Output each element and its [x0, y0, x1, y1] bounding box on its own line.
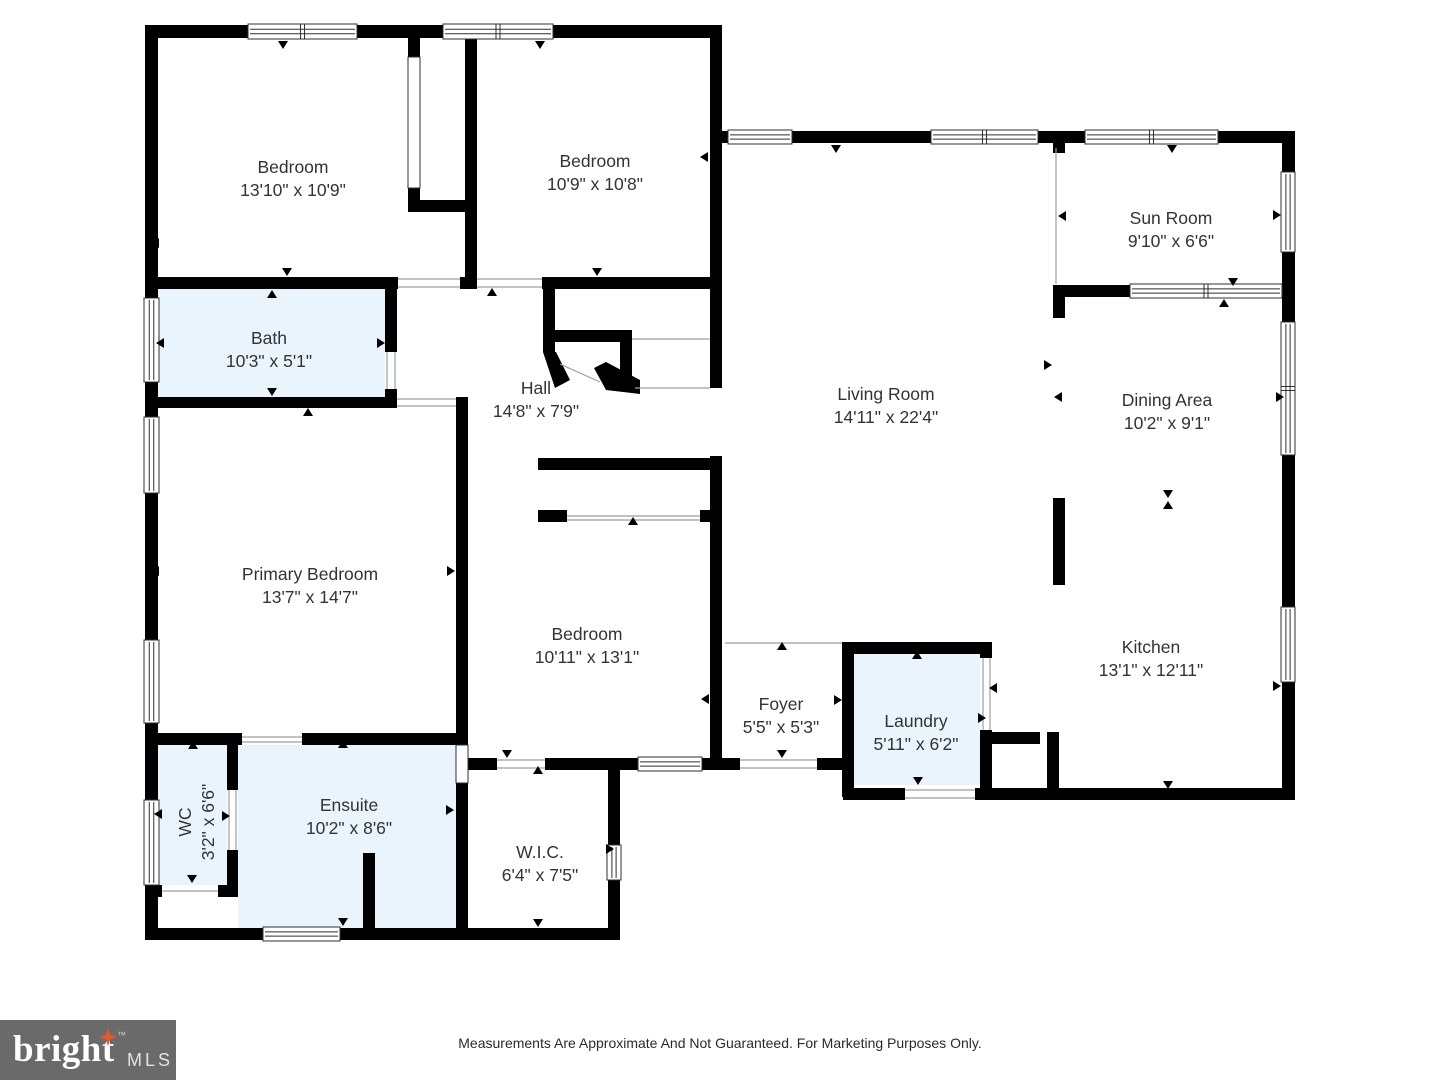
- room-label-ensuite: Ensuite 10'2" x 8'6": [306, 794, 392, 840]
- room-label-living-room: Living Room 14'11" x 22'4": [834, 383, 938, 429]
- room-label-wic: W.I.C. 6'4" x 7'5": [502, 841, 579, 887]
- room-label-primary-bedroom: Primary Bedroom 13'7" x 14'7": [242, 563, 378, 609]
- room-name: Kitchen: [1099, 636, 1203, 659]
- room-label-wc: WC 3'2" x 6'6": [174, 784, 220, 861]
- room-name: Hall: [493, 377, 579, 400]
- room-name: Bath: [226, 327, 312, 350]
- room-label-bedroom-1: Bedroom 13'10" x 10'9": [240, 156, 346, 202]
- room-dimensions: 6'4" x 7'5": [502, 864, 579, 887]
- bright-mls-logo: bright ™ MLS: [0, 1020, 176, 1080]
- room-name: Bedroom: [240, 156, 346, 179]
- room-name: Dining Area: [1122, 389, 1212, 412]
- floor-plan-drawing: [0, 0, 1440, 1080]
- room-name: Primary Bedroom: [242, 563, 378, 586]
- room-name: Bedroom: [535, 623, 639, 646]
- room-label-hall: Hall 14'8" x 7'9": [493, 377, 579, 423]
- room-dimensions: 13'10" x 10'9": [240, 179, 346, 202]
- room-dimensions: 5'11" x 6'2": [874, 733, 959, 756]
- room-name: WC: [174, 784, 197, 861]
- room-name: Sun Room: [1128, 207, 1214, 230]
- logo-trademark: ™: [117, 1030, 126, 1040]
- room-label-kitchen: Kitchen 13'1" x 12'11": [1099, 636, 1203, 682]
- room-label-sun-room: Sun Room 9'10" x 6'6": [1128, 207, 1214, 253]
- logo-mls-text: MLS: [127, 1050, 173, 1071]
- room-label-bath: Bath 10'3" x 5'1": [226, 327, 312, 373]
- room-name: Laundry: [874, 710, 959, 733]
- room-dimensions: 10'2" x 8'6": [306, 817, 392, 840]
- room-name: Bedroom: [547, 150, 643, 173]
- disclaimer-text: Measurements Are Approximate And Not Gua…: [0, 1035, 1440, 1051]
- room-dimensions: 5'5" x 5'3": [743, 716, 820, 739]
- room-name: W.I.C.: [502, 841, 579, 864]
- room-dimensions: 10'11" x 13'1": [535, 646, 639, 669]
- room-label-laundry: Laundry 5'11" x 6'2": [874, 710, 959, 756]
- room-dimensions: 10'9" x 10'8": [547, 173, 643, 196]
- room-dimensions: 14'11" x 22'4": [834, 406, 938, 429]
- room-dimensions: 9'10" x 6'6": [1128, 230, 1214, 253]
- room-dimensions: 13'1" x 12'11": [1099, 659, 1203, 682]
- room-dimensions: 10'2" x 9'1": [1122, 412, 1212, 435]
- room-name: Living Room: [834, 383, 938, 406]
- room-dimensions: 10'3" x 5'1": [226, 350, 312, 373]
- room-name: Foyer: [743, 693, 820, 716]
- logo-star-icon: [97, 1026, 119, 1048]
- room-dimensions: 13'7" x 14'7": [242, 586, 378, 609]
- room-label-dining-area: Dining Area 10'2" x 9'1": [1122, 389, 1212, 435]
- room-label-bedroom-3: Bedroom 10'11" x 13'1": [535, 623, 639, 669]
- room-dimensions: 14'8" x 7'9": [493, 400, 579, 423]
- room-name: Ensuite: [306, 794, 392, 817]
- room-label-foyer: Foyer 5'5" x 5'3": [743, 693, 820, 739]
- floor-plan-page: Bedroom 13'10" x 10'9" Bedroom 10'9" x 1…: [0, 0, 1440, 1080]
- room-dimensions: 3'2" x 6'6": [197, 784, 220, 861]
- room-label-bedroom-2: Bedroom 10'9" x 10'8": [547, 150, 643, 196]
